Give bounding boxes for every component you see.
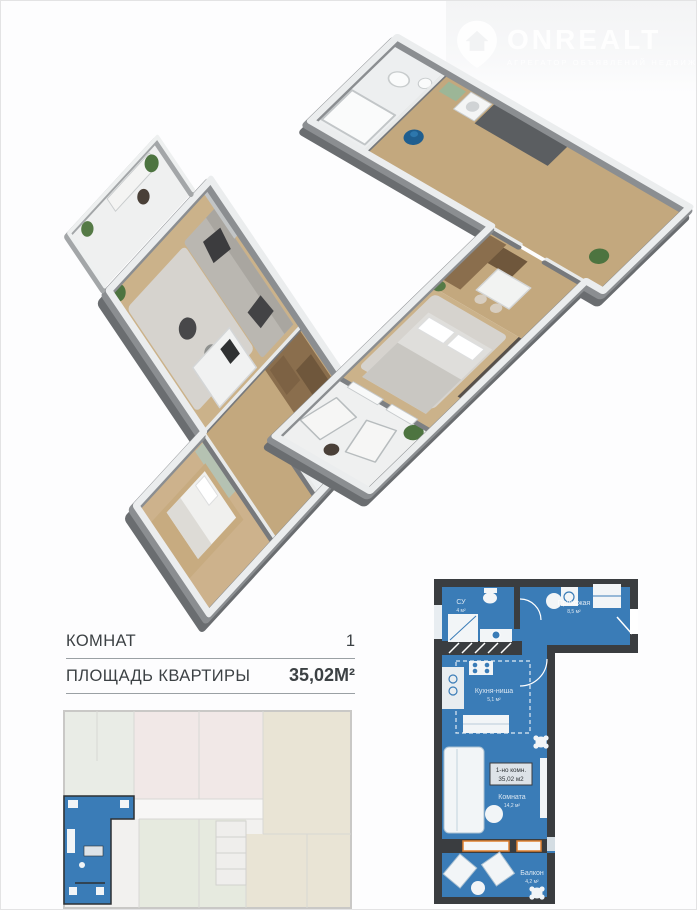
room-label-kitchen: Кухня-ниша — [475, 688, 513, 695]
rooms-value: 1 — [346, 632, 355, 651]
rooms-label: КОМНАТ — [66, 632, 136, 651]
room-label-hall: Прихожая — [558, 600, 591, 607]
floorplan-graphics: 1-но комн. 35,02 м2 СУ 4 м² Прихожая 8,5… — [1, 1, 697, 910]
room-label-su: СУ — [456, 599, 466, 606]
room-area-room: 14,2 м² — [504, 803, 521, 809]
unit-area-label: 35,02 м2 — [498, 776, 524, 783]
room-area-kitchen: 5,1 м² — [487, 697, 501, 703]
mini-unit-label-box — [84, 846, 103, 856]
unit-type-label: 1-но комн. — [496, 767, 526, 774]
building-plan — [64, 711, 351, 908]
rooms-row: КОМНАТ 1 — [66, 632, 355, 659]
room-area-su: 4 м² — [456, 608, 466, 614]
area-row: ПЛОЩАДЬ КВАРТИРЫ 35,02М² — [66, 659, 355, 694]
area-value: 35,02М² — [289, 665, 355, 686]
room-label-room: Комната — [498, 794, 526, 801]
area-label: ПЛОЩАДЬ КВАРТИРЫ — [66, 667, 250, 686]
room-area-hall: 8,5 м² — [567, 609, 581, 615]
render-3d-left — [1, 121, 381, 626]
plan-2d: 1-но комн. 35,02 м2 СУ 4 м² Прихожая 8,5… — [434, 579, 638, 904]
listing-image: ONREALT АГРЕГАТОР ОБЪЯВЛЕНИЙ НЕДВИЖИМОСТ… — [0, 0, 697, 910]
apartment-summary: КОМНАТ 1 ПЛОЩАДЬ КВАРТИРЫ 35,02М² — [66, 632, 355, 694]
room-area-balcony: 4,2 м² — [525, 879, 539, 885]
room-label-balcony: Балкон — [520, 870, 544, 877]
